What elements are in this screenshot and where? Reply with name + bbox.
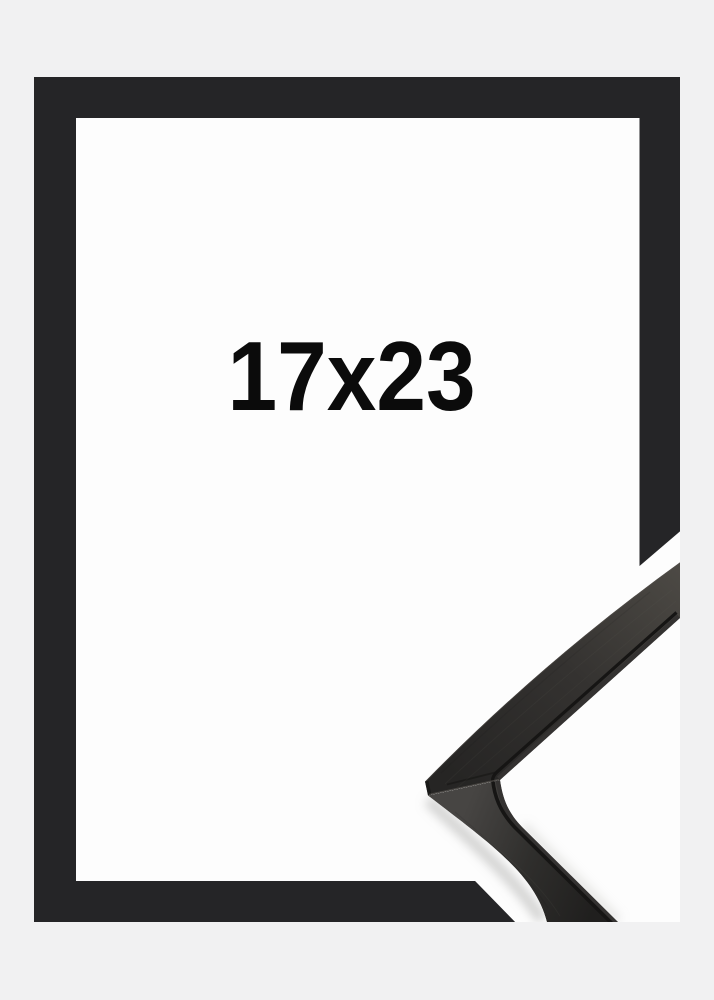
svg-text:17x23: 17x23 — [228, 321, 476, 431]
